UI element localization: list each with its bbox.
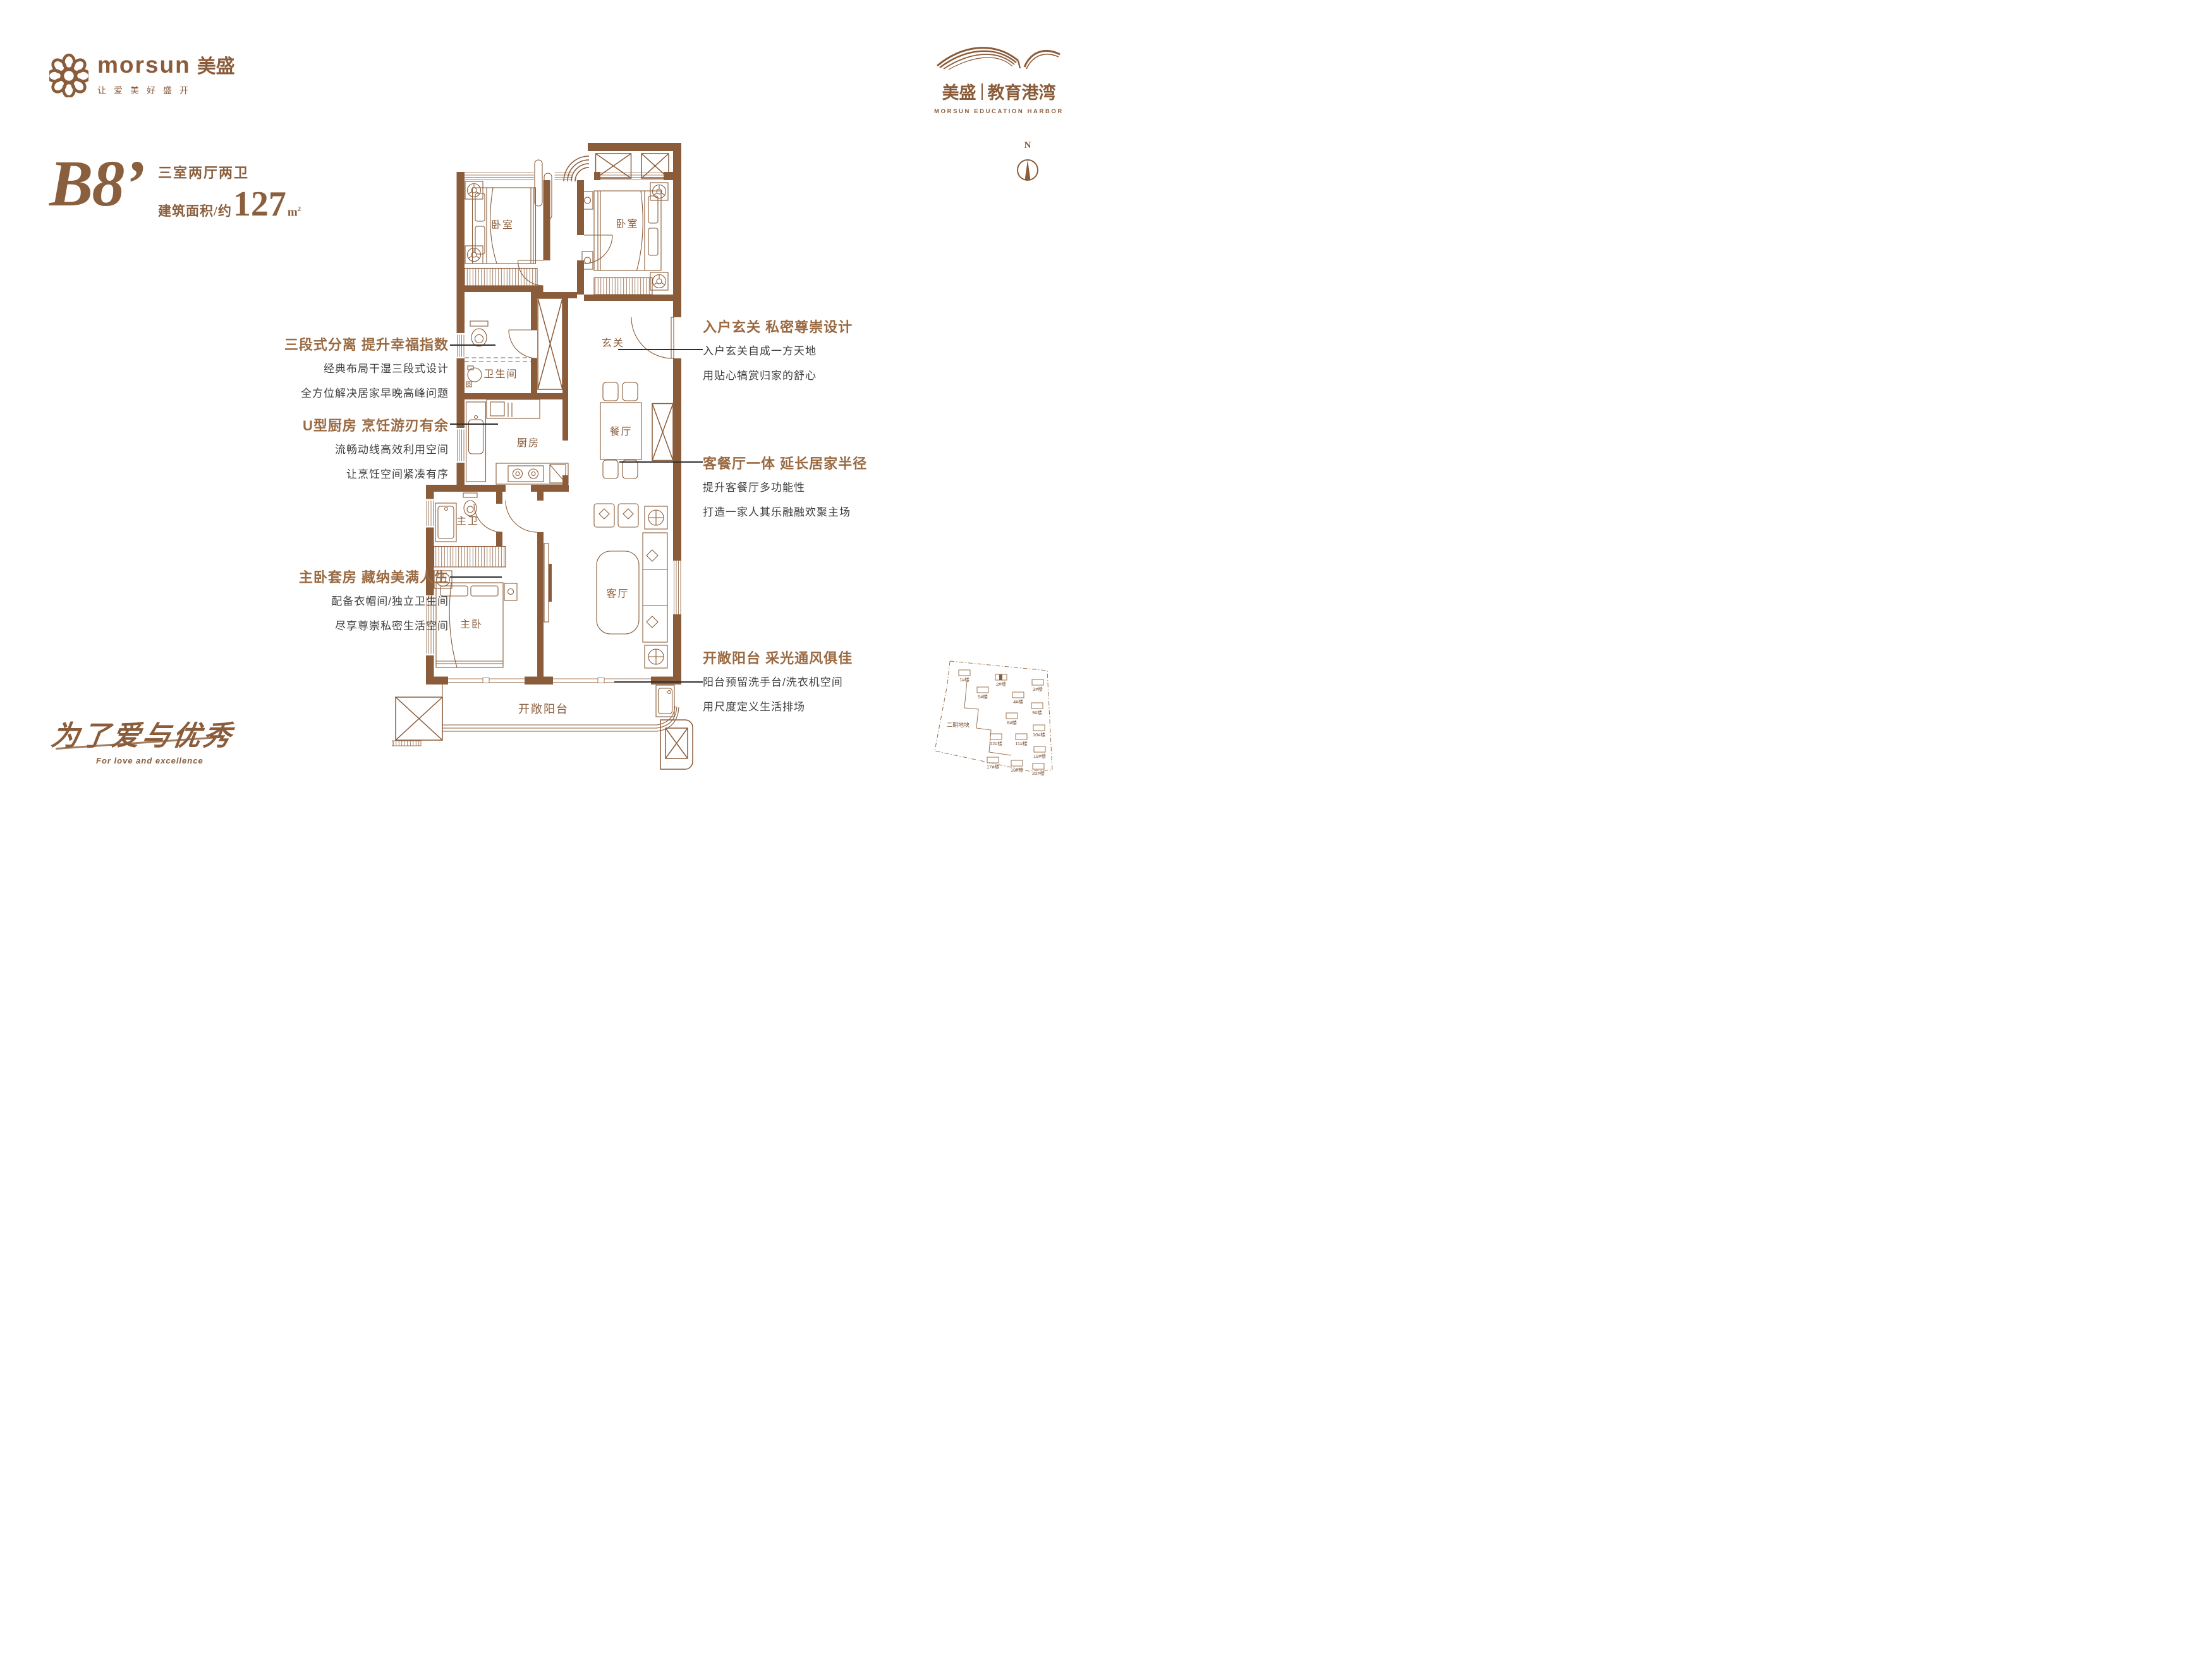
logo-divider: [981, 83, 983, 100]
leader-line-6: [614, 681, 703, 683]
annotation-title: U型厨房 烹饪游刃有余: [221, 415, 449, 435]
slogan-en: For love and excellence: [96, 756, 234, 765]
svg-text:3#楼: 3#楼: [1033, 686, 1043, 692]
svg-text:4#楼: 4#楼: [1013, 698, 1023, 705]
annotation-line: 让烹饪空间紧凑有序: [221, 465, 449, 484]
room-label-bathroom: 卫生间: [483, 368, 518, 380]
leader-line-5: [619, 461, 703, 463]
slogan-cn: 为了爱与优秀: [49, 713, 237, 753]
svg-text:19#楼: 19#楼: [1033, 753, 1047, 759]
brand-logo-text: morsun: [97, 53, 191, 76]
svg-text:5#楼: 5#楼: [978, 693, 988, 700]
wing-swoosh-icon: [936, 39, 1062, 72]
annotation-title: 主卧套房 藏纳美满人生: [221, 566, 449, 587]
annotation-title: 客餐厅一体 延长居家半径: [703, 453, 930, 473]
leader-line-4: [618, 349, 703, 350]
annotation-line: 配备衣帽间/独立卫生间: [221, 592, 449, 611]
annotation-foyer: 入户玄关 私密尊崇设计 入户玄关自成一方天地 用贴心犒赏归家的舒心: [703, 316, 930, 386]
compass: N: [1010, 140, 1045, 192]
site-map: 1#楼 2#楼 3#楼 5#楼 4#楼 9#楼 8#楼 10#楼 12#楼 11…: [929, 657, 1087, 787]
room-label-bedroom-2: 卧室: [616, 219, 638, 230]
room-label-master-bedroom: 主卧: [460, 619, 483, 630]
annotation-line: 流畅动线高效利用空间: [221, 441, 449, 459]
room-label-balcony: 开敞阳台: [518, 703, 569, 715]
project-logo-en: MORSUN EDUCATION HARBOR: [934, 108, 1064, 115]
annotation-title: 三段式分离 提升幸福指数: [221, 334, 449, 354]
unit-title-block: B8’ 三室两厅两卫 建筑面积/约 127 m2: [49, 153, 301, 220]
project-logo-cn-right: 教育港湾: [988, 79, 1056, 104]
site-building-labels: 1#楼 2#楼 3#楼 5#楼 4#楼 9#楼 8#楼 10#楼 12#楼 11…: [947, 676, 1047, 776]
flower-logo-icon: [49, 53, 88, 97]
svg-text:20#楼: 20#楼: [1032, 770, 1045, 776]
annotation-line: 用贴心犒赏归家的舒心: [703, 367, 930, 386]
living-room-furniture: [544, 504, 667, 668]
bay-curve: [564, 156, 589, 181]
svg-text:8#楼: 8#楼: [1007, 719, 1017, 726]
annotation-title: 入户玄关 私密尊崇设计: [703, 316, 930, 336]
annotation-title: 开敞阳台 采光通风俱佳: [703, 647, 930, 667]
room-label-bedroom-1: 卧室: [491, 219, 514, 231]
compass-icon: [1010, 151, 1045, 189]
compass-north-label: N: [1010, 140, 1045, 151]
annotation-master-suite: 主卧套房 藏纳美满人生 配备衣帽间/独立卫生间 尽享尊崇私密生活空间: [221, 566, 449, 636]
floorplan-poster-page: morsun 美盛 让爱美好盛开 美盛 教育港湾 MORSUN EDUCATIO…: [0, 0, 1106, 830]
wardrobe-1: [465, 269, 537, 286]
tv: [549, 564, 552, 602]
annotation-line: 打造一家人其乐融融欢聚主场: [703, 503, 930, 522]
room-label-master-bath: 主卫: [456, 516, 479, 527]
leader-line-1: [450, 344, 495, 346]
annotation-line: 用尺度定义生活排场: [703, 698, 930, 717]
annotation-three-stage: 三段式分离 提升幸福指数 经典布局干湿三段式设计 全方位解决居家早晚高峰问题: [221, 334, 449, 403]
fan-icon: [650, 183, 668, 200]
leader-line-3: [450, 576, 502, 578]
svg-text:9#楼: 9#楼: [1032, 709, 1042, 715]
annotation-line: 全方位解决居家早晚高峰问题: [221, 384, 449, 403]
room-label-kitchen: 厨房: [517, 437, 540, 449]
annotation-line: 经典布局干湿三段式设计: [221, 360, 449, 379]
project-logo: 美盛 教育港湾 MORSUN EDUCATION HARBOR: [934, 39, 1064, 115]
svg-text:10#楼: 10#楼: [1033, 731, 1046, 738]
leader-line-2: [450, 423, 498, 425]
svg-text:11#楼: 11#楼: [1015, 740, 1028, 746]
fan-icon: [465, 181, 483, 199]
unit-area-unit: m2: [288, 205, 301, 219]
svg-text:12#楼: 12#楼: [990, 740, 1003, 746]
annotation-u-kitchen: U型厨房 烹饪游刃有余 流畅动线高效利用空间 让烹饪空间紧凑有序: [221, 415, 449, 484]
annotation-living-dining: 客餐厅一体 延长居家半径 提升客餐厅多功能性 打造一家人其乐融融欢聚主场: [703, 453, 930, 522]
phase-label: 二期地块: [947, 721, 969, 728]
fan-icon: [465, 246, 483, 264]
svg-text:1#楼: 1#楼: [959, 676, 969, 683]
unit-layout: 三室两厅两卫: [158, 162, 301, 182]
annotation-line: 尽享尊崇私密生活空间: [221, 617, 449, 636]
balcony: [392, 678, 693, 770]
room-label-foyer: 玄关: [602, 338, 624, 349]
svg-text:2#楼: 2#楼: [996, 681, 1006, 687]
annotation-balcony: 开敞阳台 采光通风俱佳 阳台预留洗手台/洗衣机空间 用尺度定义生活排场: [703, 647, 930, 717]
unit-area-value: 127: [233, 188, 286, 220]
svg-text:18#楼: 18#楼: [1011, 767, 1024, 773]
unit-area-prefix: 建筑面积/约: [158, 201, 232, 220]
project-logo-cn-left: 美盛: [942, 79, 976, 104]
slogan: 为了爱与优秀 For love and excellence: [52, 713, 234, 765]
fan-icon: [650, 272, 668, 290]
room-label-living: 客厅: [606, 588, 629, 600]
svg-text:17#楼: 17#楼: [987, 764, 1000, 770]
brand-logo: morsun 美盛 让爱美好盛开: [49, 53, 235, 97]
annotation-line: 阳台预留洗手台/洗衣机空间: [703, 673, 930, 692]
walk-in-closet: [434, 547, 506, 568]
brand-tagline: 让爱美好盛开: [97, 84, 235, 97]
bed-2: [582, 191, 661, 271]
unit-code: B8’: [49, 153, 144, 216]
room-label-dining: 餐厅: [609, 426, 632, 437]
wardrobe-2: [594, 278, 652, 295]
annotation-line: 入户玄关自成一方天地: [703, 342, 930, 361]
brand-logo-cn: 美盛: [197, 58, 235, 76]
annotation-line: 提升客餐厅多功能性: [703, 478, 930, 497]
